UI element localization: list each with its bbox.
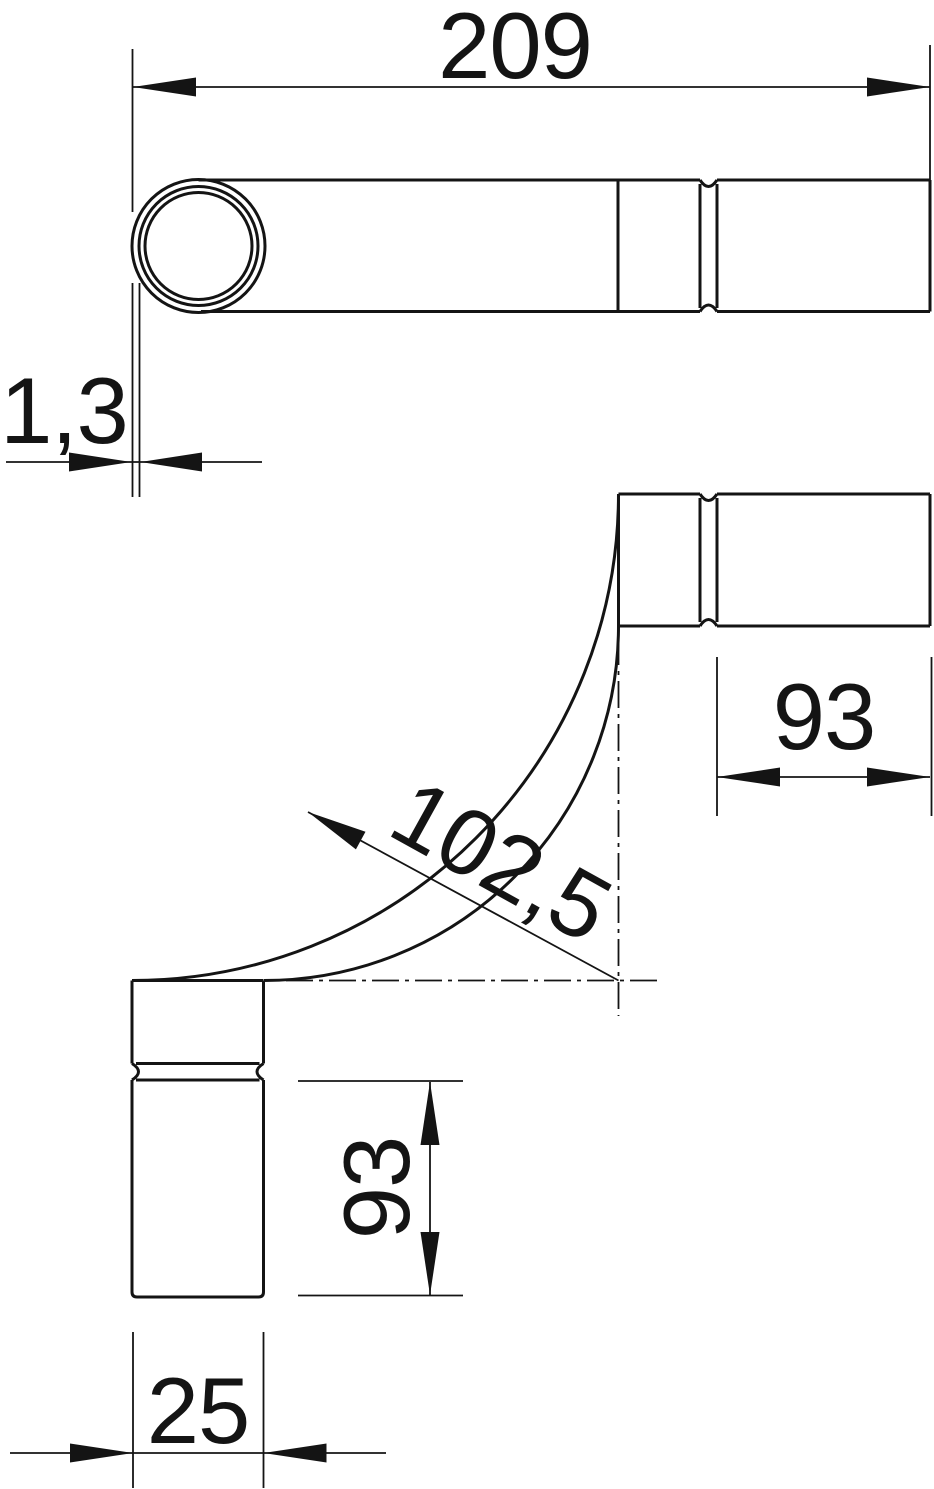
wall-thickness-label: 1,3 (0, 364, 128, 458)
pipe-end-wall-circle (139, 187, 258, 306)
pipe-end-outer-circle (132, 180, 265, 313)
groove-top-dip-b (700, 620, 717, 627)
arrow-right (867, 78, 930, 97)
groove-bottom-dip-b (257, 1064, 264, 1081)
arrow-top (421, 1082, 440, 1145)
groove-bottom-lines (136, 1064, 260, 1081)
groove-bottom-dip-a (132, 1064, 139, 1081)
groove-top-lines (700, 498, 717, 622)
side-view (132, 180, 930, 313)
arrow-right (141, 453, 203, 472)
groove-dip-bottom (700, 305, 717, 312)
arrow-left (717, 768, 780, 787)
arrow-right (867, 768, 930, 787)
arrow-right (264, 1444, 327, 1463)
pipe-end-inner-circle (145, 193, 252, 300)
arrow-left (133, 78, 196, 97)
arrow-left (70, 1444, 133, 1463)
groove-top-dip-a (700, 494, 717, 501)
overall-length-label: 209 (438, 0, 592, 93)
arrow-bottom (421, 1232, 440, 1295)
socket-top-label: 93 (773, 670, 876, 764)
outer-diameter-label: 25 (147, 1364, 250, 1458)
groove-lines (700, 184, 717, 308)
socket-bottom-label: 93 (330, 1137, 424, 1240)
radius-arrow (308, 812, 366, 849)
groove-dip-top (700, 180, 717, 187)
technical-drawing: 209 1,3 93 102,5 93 25 (0, 0, 934, 1489)
bend-pipe-left-edge (132, 981, 264, 1298)
